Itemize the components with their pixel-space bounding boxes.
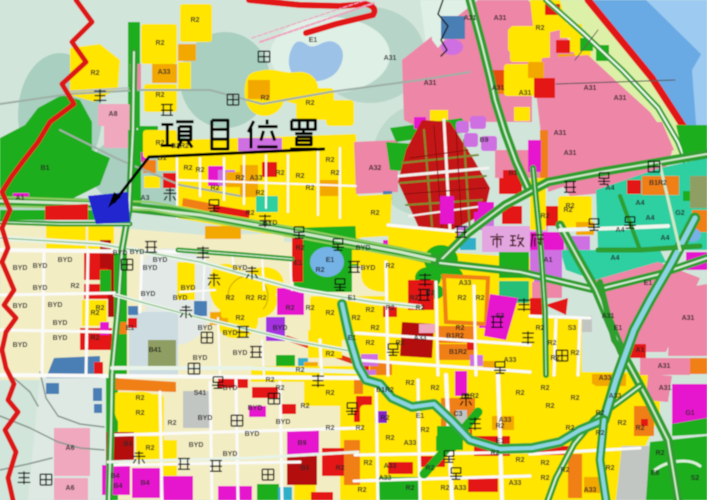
svg-text:S41: S41: [194, 390, 207, 397]
svg-text:BYD: BYD: [153, 257, 168, 264]
svg-text:E1: E1: [416, 413, 425, 420]
svg-text:R2: R2: [261, 95, 270, 102]
svg-text:R2: R2: [306, 185, 315, 192]
svg-text:E1: E1: [294, 260, 303, 267]
svg-text:BYD: BYD: [361, 265, 376, 272]
svg-text:R2: R2: [516, 390, 525, 397]
svg-text:E1: E1: [348, 335, 357, 342]
svg-text:R2: R2: [458, 295, 467, 302]
svg-text:R2: R2: [276, 385, 285, 392]
svg-text:R2: R2: [596, 430, 605, 437]
svg-text:G1: G1: [685, 410, 694, 417]
svg-text:BYD: BYD: [13, 342, 28, 349]
svg-text:A33: A33: [158, 69, 171, 76]
svg-text:A31: A31: [494, 15, 507, 22]
svg-text:R2: R2: [326, 351, 335, 358]
svg-text:R2: R2: [326, 157, 335, 164]
svg-text:A33: A33: [454, 485, 467, 492]
svg-text:A4: A4: [636, 200, 645, 207]
svg-text:R2: R2: [356, 425, 365, 432]
svg-text:R2: R2: [410, 295, 419, 302]
svg-text:BYD: BYD: [233, 350, 248, 357]
svg-text:R2: R2: [196, 167, 205, 174]
svg-text:R2: R2: [156, 140, 165, 147]
svg-text:A1: A1: [544, 257, 553, 264]
svg-text:R2: R2: [566, 425, 575, 432]
svg-text:A33: A33: [250, 175, 263, 182]
svg-text:R2: R2: [381, 415, 390, 422]
svg-text:R2: R2: [406, 485, 415, 492]
svg-text:R2: R2: [364, 460, 373, 467]
svg-text:R2: R2: [336, 465, 345, 472]
svg-text:R2: R2: [546, 403, 555, 410]
svg-text:R2: R2: [301, 403, 310, 410]
svg-text:B4: B4: [114, 483, 123, 490]
svg-text:A33: A33: [499, 417, 512, 424]
svg-text:E1: E1: [614, 325, 623, 332]
svg-text:R2: R2: [256, 190, 265, 197]
svg-text:BYD: BYD: [13, 265, 28, 272]
svg-text:R2: R2: [421, 427, 430, 434]
svg-text:A31: A31: [384, 55, 397, 62]
svg-text:R2: R2: [561, 467, 570, 474]
svg-text:R2: R2: [571, 395, 580, 402]
svg-text:B1R2: B1R2: [171, 143, 189, 150]
svg-text:R2: R2: [541, 385, 550, 392]
svg-text:A4: A4: [661, 235, 670, 242]
svg-text:R2: R2: [316, 267, 325, 274]
svg-text:A1: A1: [636, 347, 645, 354]
svg-text:R2: R2: [276, 170, 285, 177]
svg-text:BYD: BYD: [53, 320, 68, 327]
svg-text:A33: A33: [379, 475, 392, 482]
svg-text:R2: R2: [541, 460, 550, 467]
svg-text:BYD: BYD: [223, 385, 238, 392]
svg-text:A31: A31: [492, 85, 505, 92]
svg-text:R2: R2: [146, 445, 155, 452]
svg-text:A31: A31: [682, 315, 695, 322]
svg-text:A33: A33: [584, 487, 597, 494]
svg-text:R2: R2: [296, 367, 305, 374]
svg-text:B1R2: B1R2: [461, 393, 479, 400]
svg-text:BYD: BYD: [276, 419, 291, 426]
svg-text:R2: R2: [211, 185, 220, 192]
svg-text:R2: R2: [491, 450, 500, 457]
svg-text:R2: R2: [618, 420, 627, 427]
svg-text:BYD: BYD: [113, 250, 128, 257]
svg-text:A31: A31: [554, 130, 567, 137]
svg-text:BYD: BYD: [273, 325, 288, 332]
svg-text:BYD: BYD: [263, 220, 278, 227]
svg-text:BYD: BYD: [141, 291, 156, 298]
svg-text:B4: B4: [141, 480, 150, 487]
svg-text:R2: R2: [236, 315, 245, 322]
svg-text:A33: A33: [404, 440, 417, 447]
svg-text:R2: R2: [366, 340, 375, 347]
svg-text:BYD: BYD: [143, 265, 158, 272]
svg-text:B9: B9: [298, 440, 307, 447]
svg-text:BYD: BYD: [173, 295, 188, 302]
svg-text:R2: R2: [571, 350, 580, 357]
svg-text:A31: A31: [519, 90, 532, 97]
svg-text:A4: A4: [646, 215, 655, 222]
svg-text:A4: A4: [606, 185, 615, 192]
svg-text:BYD: BYD: [223, 451, 238, 458]
svg-text:R2: R2: [258, 295, 267, 302]
svg-text:R2: R2: [191, 17, 200, 24]
svg-text:R2: R2: [536, 325, 545, 332]
svg-text:BYD: BYD: [53, 335, 68, 342]
svg-text:A3: A3: [141, 195, 150, 202]
svg-text:R2: R2: [396, 340, 405, 347]
svg-text:E8: E8: [651, 470, 660, 477]
svg-text:BYD: BYD: [223, 330, 238, 337]
svg-text:BYD: BYD: [193, 355, 208, 362]
svg-text:R2: R2: [551, 355, 560, 362]
svg-text:B1: B1: [301, 465, 310, 472]
svg-text:R2: R2: [296, 245, 305, 252]
svg-text:A33: A33: [509, 480, 522, 487]
svg-text:R2: R2: [296, 173, 305, 180]
svg-text:R2: R2: [91, 335, 100, 342]
svg-text:E1: E1: [326, 257, 335, 264]
svg-text:A31: A31: [424, 80, 437, 87]
svg-text:A6: A6: [66, 485, 75, 492]
svg-text:R2: R2: [246, 210, 255, 217]
svg-text:R2: R2: [71, 283, 80, 290]
svg-text:B1: B1: [158, 155, 167, 162]
svg-text:B1: B1: [124, 441, 133, 448]
svg-text:R2: R2: [566, 203, 575, 210]
svg-text:BYD: BYD: [198, 415, 213, 422]
svg-text:A31: A31: [564, 150, 577, 157]
svg-text:BYD: BYD: [189, 442, 204, 449]
svg-text:R2: R2: [366, 307, 375, 314]
svg-text:B1: B1: [509, 170, 518, 177]
svg-text:G2: G2: [675, 210, 684, 217]
svg-text:C3: C3: [454, 411, 463, 418]
svg-text:R2: R2: [406, 380, 415, 387]
svg-text:R2: R2: [636, 425, 645, 432]
svg-text:R2: R2: [456, 325, 465, 332]
svg-text:A31: A31: [614, 95, 627, 102]
svg-text:R2: R2: [91, 70, 100, 77]
svg-text:A31: A31: [584, 85, 597, 92]
svg-text:A31: A31: [658, 363, 671, 370]
svg-text:BYD: BYD: [181, 285, 196, 292]
svg-text:R2: R2: [326, 390, 335, 397]
svg-text:BYD: BYD: [356, 245, 371, 252]
svg-text:R2: R2: [236, 175, 245, 182]
svg-text:A33: A33: [384, 463, 397, 470]
svg-text:R2: R2: [386, 435, 395, 442]
svg-text:R2: R2: [326, 310, 335, 317]
svg-text:BYD: BYD: [33, 263, 48, 270]
svg-text:A32: A32: [369, 165, 382, 172]
svg-text:A4: A4: [616, 227, 625, 234]
svg-text:R2: R2: [246, 295, 255, 302]
svg-text:BYD: BYD: [198, 325, 213, 332]
svg-text:BYD: BYD: [233, 265, 248, 272]
svg-text:BYD: BYD: [130, 249, 145, 256]
svg-text:R2: R2: [136, 395, 145, 402]
svg-text:R2: R2: [416, 305, 425, 312]
svg-text:B41: B41: [149, 347, 162, 354]
svg-text:BYD: BYD: [245, 431, 260, 438]
svg-text:R2: R2: [656, 450, 665, 457]
svg-text:B1: B1: [41, 165, 50, 172]
svg-text:A33: A33: [504, 357, 517, 364]
svg-text:R2: R2: [184, 165, 193, 172]
svg-text:R2: R2: [226, 295, 235, 302]
svg-text:R2: R2: [496, 423, 505, 430]
svg-text:B1R2: B1R2: [376, 387, 394, 394]
svg-text:R2: R2: [326, 425, 335, 432]
svg-text:B1R2: B1R2: [446, 333, 464, 340]
svg-text:E1: E1: [126, 325, 135, 332]
svg-text:S2: S2: [691, 475, 700, 482]
svg-text:A31: A31: [602, 313, 615, 320]
svg-text:A33: A33: [609, 393, 622, 400]
svg-text:B1R2: B1R2: [649, 180, 667, 187]
svg-text:R2: R2: [541, 475, 550, 482]
svg-text:BYD: BYD: [33, 285, 48, 292]
svg-text:BYD: BYD: [48, 302, 63, 309]
svg-text:R2: R2: [96, 305, 105, 312]
svg-text:R2: R2: [331, 170, 340, 177]
svg-text:R2: R2: [156, 92, 165, 99]
svg-text:R2: R2: [516, 457, 525, 464]
svg-text:E1: E1: [348, 295, 357, 302]
svg-text:A33: A33: [459, 280, 472, 287]
svg-text:B9: B9: [480, 137, 489, 144]
svg-text:R2: R2: [606, 465, 615, 472]
svg-text:B1R2: B1R2: [449, 349, 467, 356]
svg-text:BYD: BYD: [13, 303, 28, 310]
svg-text:A1: A1: [16, 195, 25, 202]
svg-text:R2: R2: [596, 410, 605, 417]
svg-text:A33: A33: [599, 375, 612, 382]
svg-text:R2: R2: [431, 385, 440, 392]
svg-text:A4: A4: [611, 255, 620, 262]
svg-text:R2: R2: [371, 325, 380, 332]
svg-text:R2: R2: [358, 487, 367, 494]
svg-text:S3: S3: [496, 313, 505, 320]
svg-text:R2: R2: [371, 210, 380, 217]
svg-text:A8: A8: [109, 111, 118, 118]
svg-text:A33: A33: [414, 335, 427, 342]
svg-text:R2: R2: [548, 340, 557, 347]
svg-text:R2: R2: [426, 465, 435, 472]
svg-text:A31: A31: [464, 15, 477, 22]
svg-text:R2: R2: [306, 305, 315, 312]
svg-text:R2: R2: [536, 25, 545, 32]
svg-text:R2: R2: [266, 377, 275, 384]
svg-text:S3: S3: [568, 325, 577, 332]
svg-text:R2: R2: [386, 305, 395, 312]
svg-text:R2: R2: [352, 315, 361, 322]
svg-text:R2: R2: [386, 263, 395, 270]
svg-text:BYD: BYD: [58, 257, 73, 264]
svg-text:E1: E1: [496, 438, 505, 445]
svg-text:R2: R2: [476, 295, 485, 302]
svg-text:R2: R2: [156, 40, 165, 47]
svg-text:R2: R2: [306, 100, 315, 107]
svg-text:B4: B4: [111, 473, 120, 480]
svg-text:A31: A31: [659, 385, 672, 392]
svg-text:R2: R2: [441, 485, 450, 492]
svg-text:R2: R2: [286, 305, 295, 312]
svg-text:R2: R2: [136, 410, 145, 417]
svg-text:R2: R2: [168, 420, 177, 427]
svg-text:BYD: BYD: [248, 405, 263, 412]
svg-text:E1: E1: [644, 280, 653, 287]
svg-text:R2: R2: [541, 213, 550, 220]
svg-text:R2: R2: [426, 290, 435, 297]
svg-text:E1: E1: [309, 37, 318, 44]
svg-text:A6: A6: [66, 445, 75, 452]
